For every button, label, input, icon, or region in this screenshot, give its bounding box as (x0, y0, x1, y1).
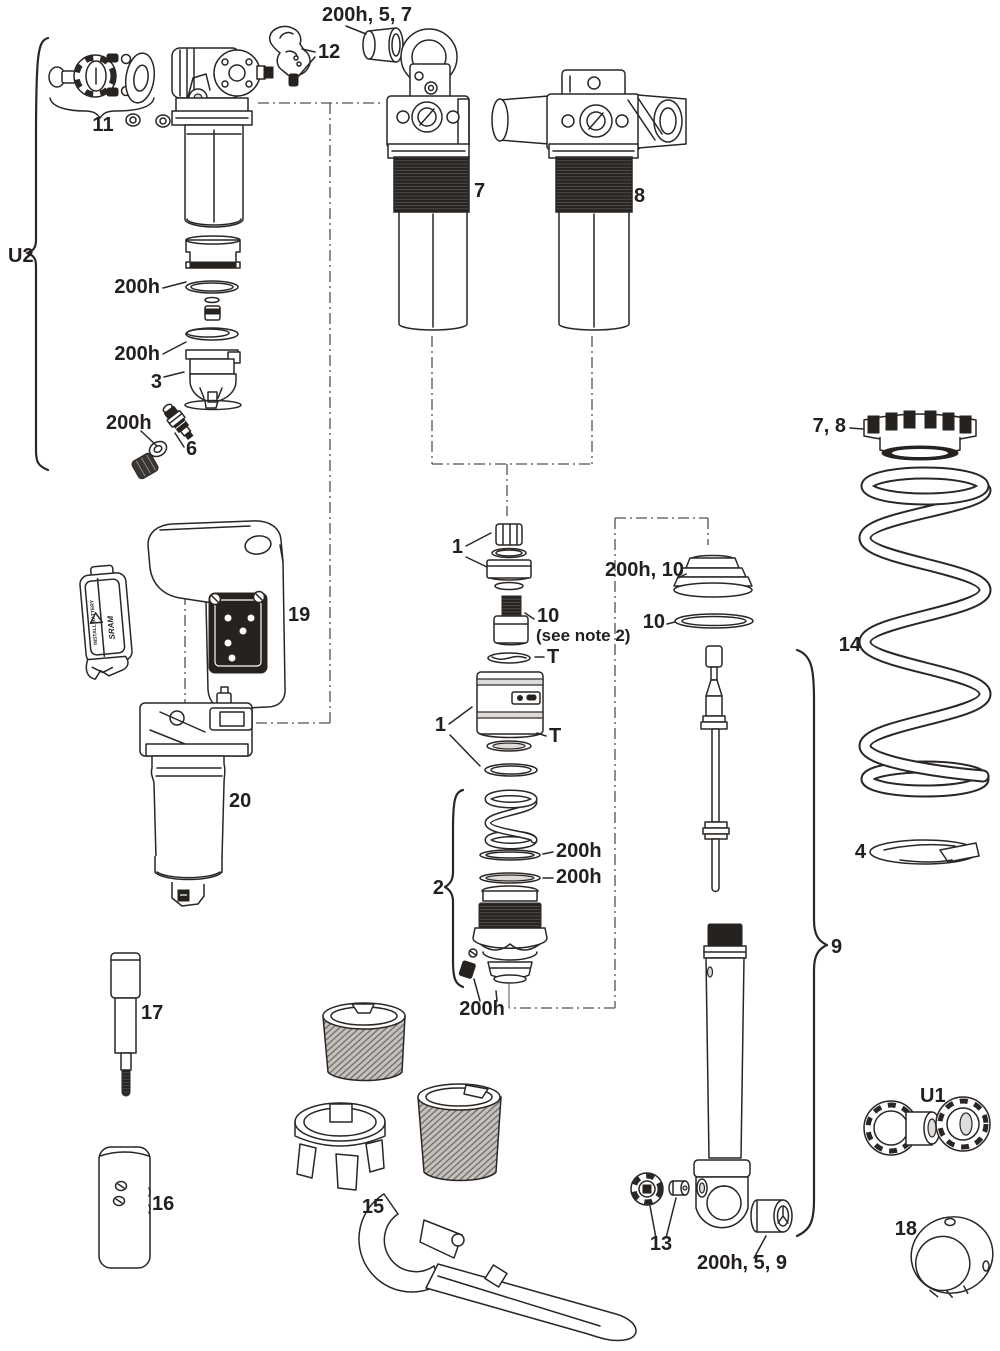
t-ring-upper: T (488, 646, 559, 668)
shaft-hardware-1-top: 1 (452, 524, 531, 590)
small-spring (488, 793, 534, 846)
u1-knobs: U1 (864, 1085, 990, 1155)
module-housing (148, 521, 285, 709)
top-cap-3 (186, 350, 240, 408)
label-1-top: 1 (452, 536, 463, 558)
air-can-stack: 200h 200h 3 200h 6 (106, 236, 241, 480)
controller-19: INSTALL BATTERY SRAM 19 (78, 521, 311, 709)
label-13: 13 (650, 1233, 672, 1255)
label-15: 15 (362, 1196, 384, 1218)
damper-shaft-body (694, 924, 750, 1228)
label-1-piston: 1 (435, 714, 446, 736)
label-20: 20 (229, 790, 251, 812)
label-200h-2c: 200h (459, 998, 505, 1020)
label-200h-2a: 200h (556, 840, 602, 862)
label-3: 3 (151, 371, 162, 393)
knurled-cylinder-a (323, 1003, 405, 1080)
label-2: 2 (433, 877, 444, 899)
label-200h-a: 200h (114, 276, 160, 298)
label-16: 16 (152, 1193, 174, 1215)
mount-hardware-11: 11 (49, 51, 170, 136)
damper-body-20: 20 (140, 687, 252, 906)
preload-collar: 7, 8 (813, 411, 976, 460)
bottom-out-bumper: 200h, 10 10 (605, 555, 753, 633)
label-14: 14 (839, 634, 862, 656)
label-200h-10: 200h, 10 (605, 559, 684, 581)
label-11: 11 (92, 114, 113, 136)
cap-18: 18 (895, 1208, 1000, 1304)
label-200h-c: 200h (106, 412, 152, 434)
label-t-upper: T (547, 646, 559, 668)
piston-assembly-1: 1 T (435, 672, 561, 776)
label-17: 17 (141, 1002, 163, 1024)
u2-bracket: U2 (8, 38, 48, 470)
label-t-lower: T (549, 725, 561, 747)
u2-label: U2 (8, 245, 34, 267)
lever-12: 12 (270, 26, 341, 86)
left-shock-assembly (172, 48, 273, 227)
shock-body-7: 7 (387, 29, 485, 330)
label-200h-2b: 200h (556, 866, 602, 888)
damper-shaft-group-9: 9 13 (631, 646, 842, 1274)
label-6: 6 (186, 438, 197, 460)
spring-retainer-4: 4 (855, 840, 979, 864)
rebound-valve-10: 10 (see note 2) (494, 596, 630, 645)
crown-adapter (295, 1103, 385, 1190)
rebound-rod (701, 646, 729, 892)
diagram-canvas: U2 11 12 200h, 5, 7 (0, 0, 1000, 1351)
label-200h-b: 200h (114, 343, 160, 365)
label-9: 9 (831, 936, 842, 958)
seal-head-piston (473, 886, 547, 960)
knurled-cylinder-b (418, 1084, 501, 1180)
label-12: 12 (318, 41, 340, 63)
wrench (359, 1194, 636, 1341)
label-see-note-2: (see note 2) (536, 626, 630, 645)
tool-rod-17: 17 (111, 953, 163, 1096)
label-19: 19 (288, 604, 310, 626)
battery: INSTALL BATTERY SRAM (78, 564, 135, 680)
label-4: 4 (855, 841, 867, 863)
coil-spring-14: 14 (839, 473, 985, 791)
shaft-nut-13: 13 (631, 1173, 689, 1255)
exploded-parts-diagram: U2 11 12 200h, 5, 7 (0, 0, 1000, 1351)
tool-sleeve-16: 16 (99, 1147, 174, 1268)
tool-set-15: 15 (295, 1003, 636, 1341)
label-7-8: 7, 8 (813, 415, 846, 437)
label-10-washer: 10 (643, 611, 665, 633)
label-8: 8 (634, 185, 645, 207)
label-7: 7 (474, 180, 485, 202)
shock-body-8: 8 (492, 70, 686, 330)
bottom-cap (488, 962, 532, 983)
label-10: 10 (537, 605, 559, 627)
label-200h-5-9: 200h, 5, 9 (697, 1252, 787, 1274)
damper-internals-2: 2 200h 200h 200h (433, 790, 602, 1020)
label-18: 18 (895, 1218, 917, 1240)
label-u1: U1 (920, 1085, 946, 1107)
label-200h-5-7: 200h, 5, 7 (322, 4, 412, 26)
